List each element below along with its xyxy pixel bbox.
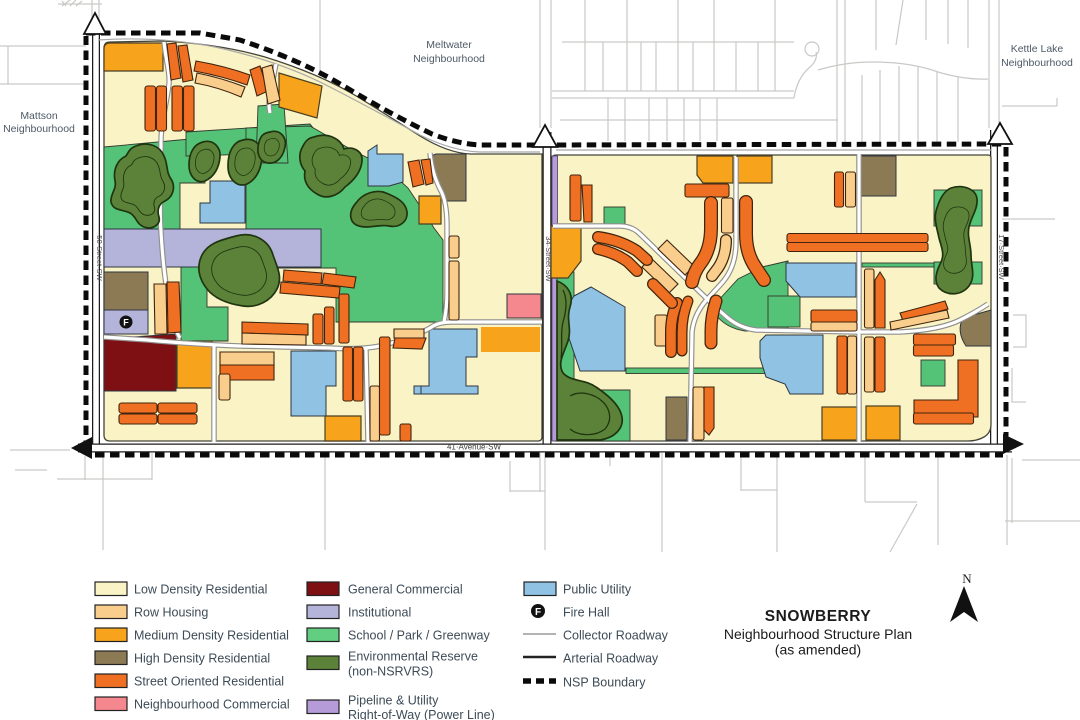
svg-text:General Commercial: General Commercial xyxy=(348,583,463,597)
svg-text:Meltwater: Meltwater xyxy=(426,39,472,51)
svg-text:34·Street·SW: 34·Street·SW xyxy=(544,236,553,282)
svg-text:N: N xyxy=(962,571,972,586)
svg-text:Neighbourhood: Neighbourhood xyxy=(413,53,485,65)
svg-text:Collector Roadway: Collector Roadway xyxy=(563,629,669,643)
svg-text:NSP Boundary: NSP Boundary xyxy=(563,676,646,690)
svg-text:Environmental Reserve: Environmental Reserve xyxy=(348,650,478,664)
svg-text:Arterial Roadway: Arterial Roadway xyxy=(563,652,659,666)
svg-text:Public Utility: Public Utility xyxy=(563,583,632,597)
svg-text:Mattson: Mattson xyxy=(20,110,58,122)
svg-text:41·Avenue·SW: 41·Avenue·SW xyxy=(447,443,502,452)
svg-text:Institutional: Institutional xyxy=(348,606,411,620)
svg-text:High Density Residential: High Density Residential xyxy=(134,652,270,666)
svg-text:Neighbourhood: Neighbourhood xyxy=(3,123,75,135)
svg-text:(as amended): (as amended) xyxy=(775,642,861,658)
svg-text:(non-NSRVRS): (non-NSRVRS) xyxy=(348,665,433,679)
svg-text:Street Oriented Residential: Street Oriented Residential xyxy=(134,675,284,689)
svg-text:Row Housing: Row Housing xyxy=(134,606,208,620)
svg-text:Fire Hall: Fire Hall xyxy=(563,606,610,620)
svg-text:Low Density Residential: Low Density Residential xyxy=(134,583,267,597)
svg-text:F: F xyxy=(535,607,541,618)
svg-text:50·Street·SW: 50·Street·SW xyxy=(95,235,104,281)
svg-text:Neighbourhood Commercial: Neighbourhood Commercial xyxy=(134,698,290,712)
svg-text:Pipeline & Utility: Pipeline & Utility xyxy=(348,694,439,708)
svg-text:Neighbourhood Structure Plan: Neighbourhood Structure Plan xyxy=(724,626,912,642)
svg-text:17·Street·SW: 17·Street·SW xyxy=(997,234,1006,280)
svg-text:Kettle Lake: Kettle Lake xyxy=(1011,43,1064,55)
svg-text:Right-of-Way (Power Line): Right-of-Way (Power Line) xyxy=(348,708,495,720)
svg-text:School / Park / Greenway: School / Park / Greenway xyxy=(348,629,490,643)
svg-text:Medium Density Residential: Medium Density Residential xyxy=(134,629,289,643)
svg-text:SNOWBERRY: SNOWBERRY xyxy=(765,608,872,625)
svg-text:F: F xyxy=(123,318,129,328)
svg-text:Neighbourhood: Neighbourhood xyxy=(1001,57,1073,69)
